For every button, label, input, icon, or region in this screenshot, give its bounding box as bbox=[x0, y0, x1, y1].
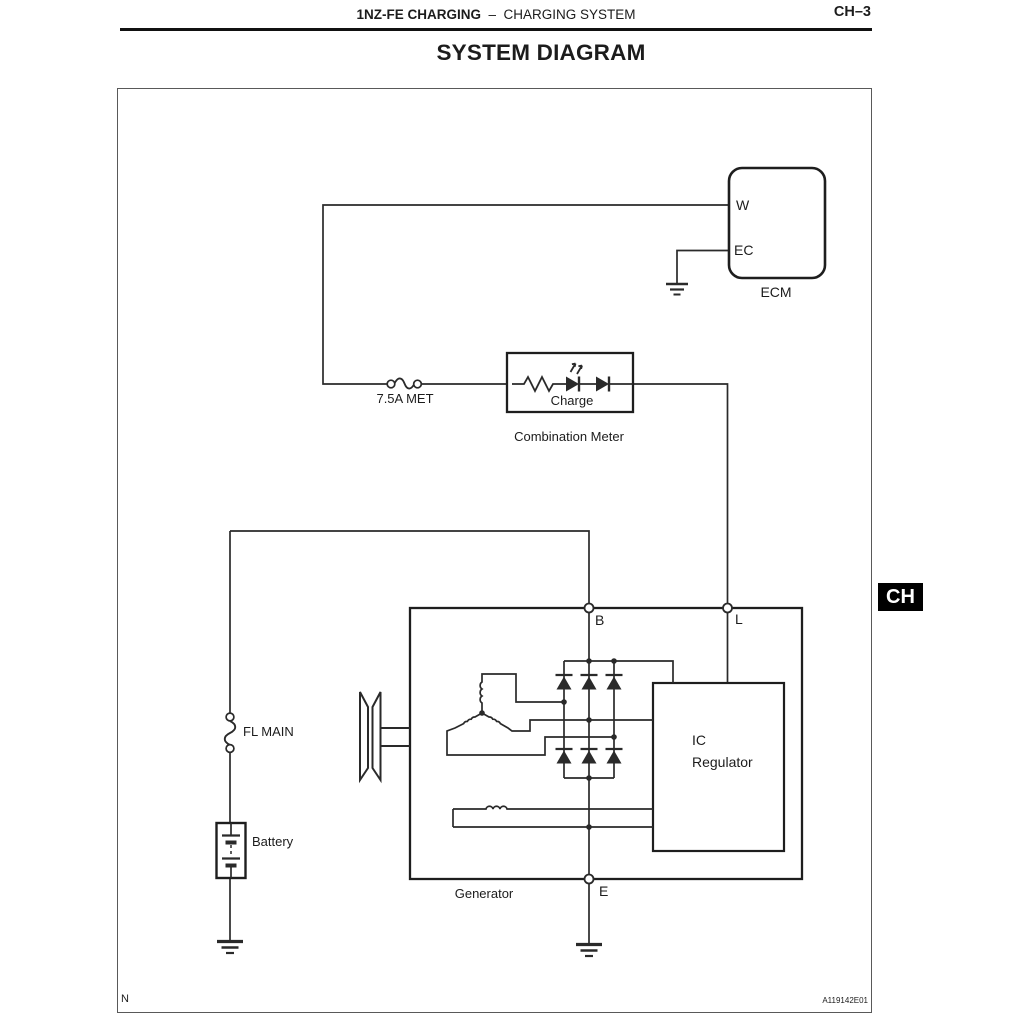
met-fuse-icon bbox=[387, 378, 421, 388]
figure-code: A119142E01 bbox=[822, 996, 868, 1005]
generator-box bbox=[410, 608, 802, 879]
pulley-icon bbox=[360, 692, 410, 780]
manual-page: 1NZ-FE CHARGING – CHARGING SYSTEM CH–3 S… bbox=[0, 0, 1024, 1024]
charge-led-icon bbox=[566, 364, 582, 392]
resistor-icon bbox=[512, 377, 566, 391]
terminal-b bbox=[585, 604, 594, 613]
footer-note: N bbox=[121, 993, 129, 1005]
generator-label: Generator bbox=[455, 886, 514, 901]
b-wire bbox=[230, 531, 589, 604]
w-wire bbox=[323, 205, 729, 384]
ecm-box bbox=[729, 168, 825, 278]
terminal-ec-label: EC bbox=[734, 242, 753, 258]
lower-diodes-icon bbox=[556, 749, 623, 764]
combination-meter-label: Combination Meter bbox=[514, 429, 624, 444]
battery-symbol-icon bbox=[222, 823, 240, 878]
charge-lamp-circuit bbox=[512, 364, 633, 392]
system-diagram-canvas bbox=[0, 0, 1024, 1024]
ecm-label: ECM bbox=[760, 284, 791, 300]
ec-wire bbox=[677, 251, 729, 285]
junction-dots bbox=[479, 658, 617, 830]
section-tab-label: CH bbox=[886, 586, 915, 609]
rotor-coil-icon bbox=[453, 806, 653, 827]
wires bbox=[230, 205, 729, 944]
rectifier-bridge bbox=[556, 613, 674, 875]
terminal-e-label: E bbox=[599, 883, 608, 899]
stator-coil-icon bbox=[447, 674, 653, 755]
battery-label: Battery bbox=[252, 834, 293, 849]
fuse-label: 7.5A MET bbox=[376, 391, 433, 406]
diode-icon bbox=[596, 377, 609, 392]
upper-diodes-icon bbox=[556, 675, 623, 690]
e-ground-icon bbox=[576, 945, 602, 957]
battery-ground-icon bbox=[217, 942, 243, 954]
terminal-e bbox=[585, 875, 594, 884]
terminal-w-label: W bbox=[736, 197, 749, 213]
ic-regulator-label-line2: Regulator bbox=[692, 754, 753, 770]
ec-ground-icon bbox=[666, 284, 688, 295]
fusible-link-icon bbox=[225, 713, 236, 752]
stator-phase2 bbox=[482, 713, 653, 731]
ic-regulator-label-line1: IC bbox=[692, 732, 706, 748]
fl-main-label: FL MAIN bbox=[243, 724, 294, 739]
l-wire bbox=[633, 384, 728, 604]
stator-phase1 bbox=[480, 674, 564, 713]
terminal-b-label: B bbox=[595, 612, 604, 628]
generator-terminals bbox=[585, 604, 733, 884]
terminal-l bbox=[723, 604, 732, 613]
plus-bus bbox=[564, 661, 673, 683]
charge-label: Charge bbox=[551, 393, 594, 408]
section-tab: CH bbox=[878, 583, 923, 611]
terminal-l-label: L bbox=[735, 611, 743, 627]
